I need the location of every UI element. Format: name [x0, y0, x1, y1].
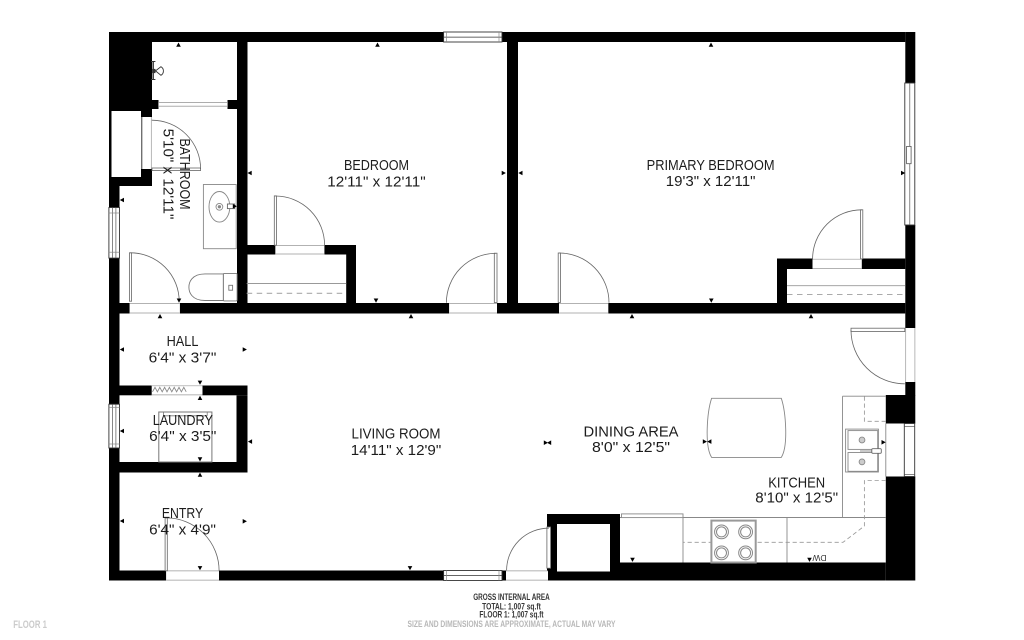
svg-text:8'10" x 12'5": 8'10" x 12'5": [755, 490, 838, 506]
svg-text:6'4" x 3'7": 6'4" x 3'7": [149, 350, 217, 366]
svg-text:LAUNDRY: LAUNDRY: [153, 413, 214, 429]
svg-text:8'0" x 12'5": 8'0" x 12'5": [592, 440, 670, 456]
svg-text:12'11" x 12'11": 12'11" x 12'11": [327, 175, 425, 191]
svg-text:6'4" x 3'5": 6'4" x 3'5": [149, 429, 216, 445]
svg-text:DINING AREA: DINING AREA: [584, 425, 679, 441]
svg-text:BEDROOM: BEDROOM: [344, 158, 409, 174]
svg-text:KITCHEN: KITCHEN: [768, 475, 825, 491]
svg-text:19'3" x 12'11": 19'3" x 12'11": [666, 174, 756, 190]
svg-text:SIZE AND DIMENSIONS ARE APPROX: SIZE AND DIMENSIONS ARE APPROXIMATE, ACT…: [408, 618, 616, 629]
svg-text:6'4" x 4'9": 6'4" x 4'9": [149, 523, 216, 539]
svg-text:14'11" x 12'9": 14'11" x 12'9": [351, 443, 442, 459]
svg-text:FLOOR 1: FLOOR 1: [13, 619, 47, 631]
svg-text:PRIMARY BEDROOM: PRIMARY BEDROOM: [647, 158, 775, 174]
svg-text:HALL: HALL: [167, 334, 199, 350]
svg-text:LIVING ROOM: LIVING ROOM: [352, 426, 441, 442]
svg-text:ENTRY: ENTRY: [162, 506, 204, 522]
svg-text:BATHROOM: BATHROOM: [176, 138, 192, 209]
svg-text:DW: DW: [812, 553, 826, 562]
svg-text:5'10" x 12'11": 5'10" x 12'11": [160, 129, 176, 220]
